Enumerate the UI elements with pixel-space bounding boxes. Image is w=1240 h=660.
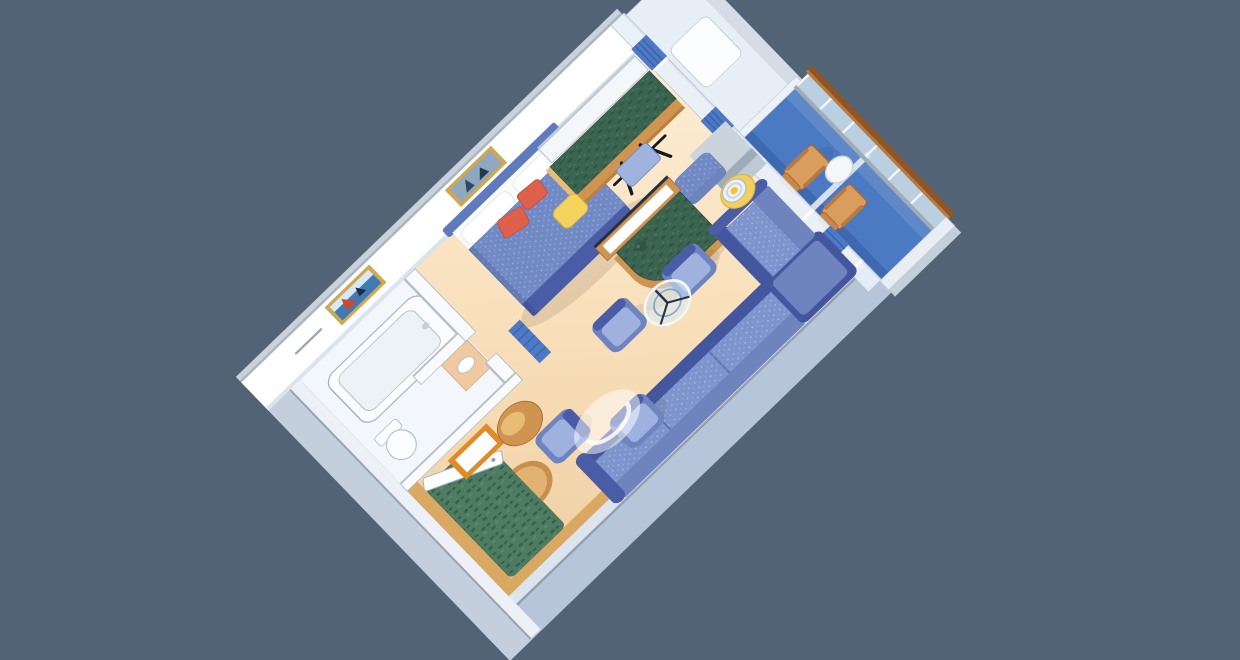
- floorplan-stage: Isometric 3D cutaway floor plan of a cru…: [0, 0, 1240, 660]
- floorplan-canvas: Isometric 3D cutaway floor plan of a cru…: [0, 0, 1240, 660]
